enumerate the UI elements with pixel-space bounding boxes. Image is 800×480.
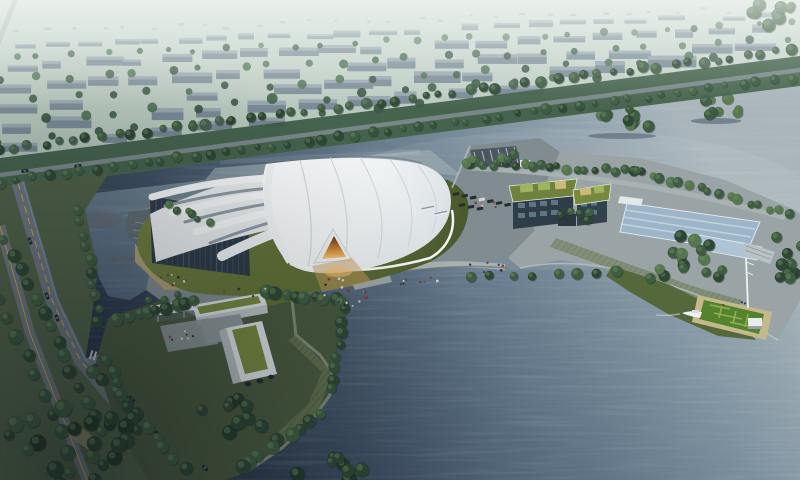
vignette-overlay xyxy=(0,0,800,480)
architectural-rendering xyxy=(0,0,800,480)
aerial-rendering-canvas xyxy=(0,0,800,480)
